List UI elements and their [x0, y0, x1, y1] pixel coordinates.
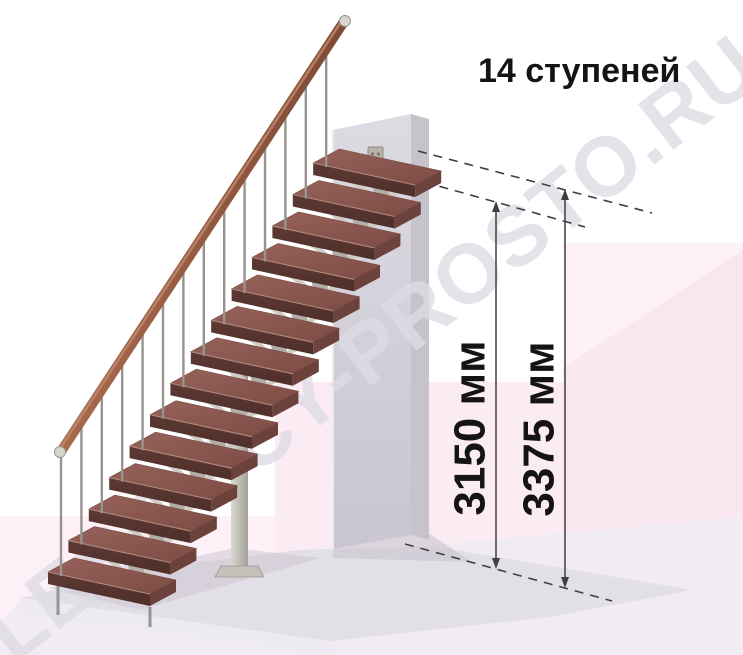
column-base-plate: [215, 566, 264, 577]
dimension-label-3150: 3150 мм: [445, 340, 494, 515]
handrail-end-cap: [55, 447, 66, 458]
scene-canvas: LESTNICY-PROSTO.RU: [0, 0, 743, 655]
staircase-diagram: LESTNICY-PROSTO.RU: [0, 0, 743, 655]
bracket-hole: [371, 152, 374, 155]
title-step-count: 14 ступеней: [478, 52, 680, 90]
bracket-hole: [377, 152, 380, 155]
handrail-top-cap: [340, 16, 351, 27]
dimension-label-3375: 3375 мм: [514, 341, 563, 516]
